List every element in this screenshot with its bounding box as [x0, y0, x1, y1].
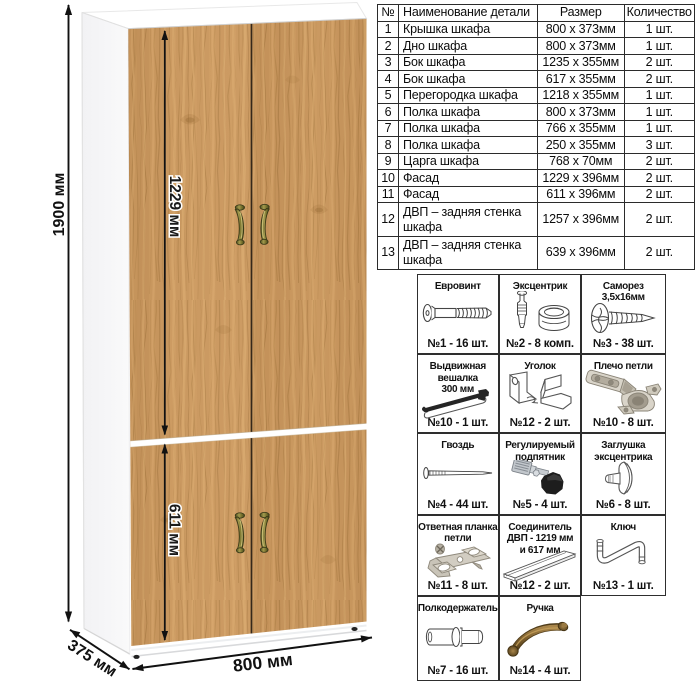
svg-text:611 мм: 611 мм	[166, 504, 183, 556]
svg-text:1900 мм: 1900 мм	[51, 173, 68, 237]
svg-text:1229 мм: 1229 мм	[166, 176, 183, 238]
svg-text:800 мм: 800 мм	[232, 649, 294, 676]
